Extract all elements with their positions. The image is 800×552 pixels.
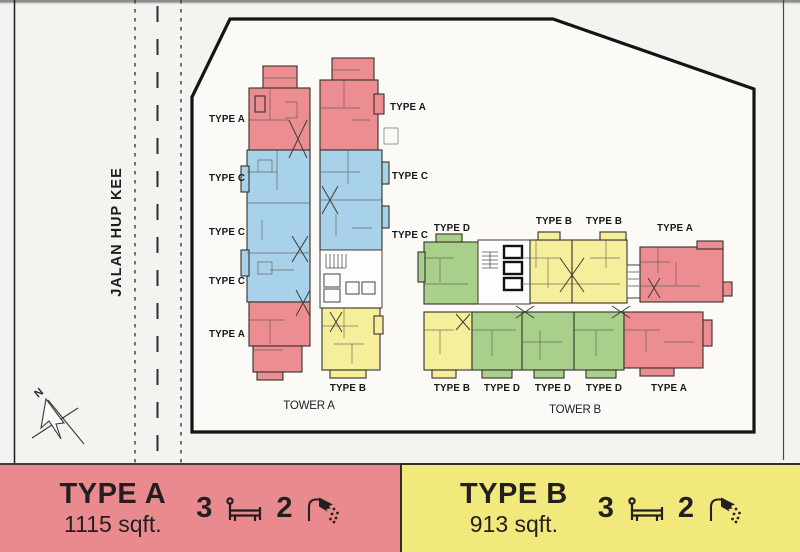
lift-shaft — [504, 278, 522, 290]
legend-type-area: 1115 sqft. — [60, 511, 167, 538]
tower-a-name: TOWER A — [283, 400, 335, 412]
tower-a-type-b-unit — [322, 308, 383, 378]
unit-type-label: TYPE D — [484, 383, 520, 394]
road-name-label: JALAN HUP KEE — [109, 167, 125, 297]
scan-artifact-strip — [0, 0, 800, 3]
tower-a-left-type-a-bottom — [249, 302, 310, 380]
tower-a-core — [320, 250, 382, 308]
tower-b-bottom-type-a — [624, 312, 712, 376]
legend-type-name: TYPE A — [60, 479, 167, 509]
unit-type-label: TYPE C — [209, 173, 245, 184]
tower-b-link-bridge — [627, 265, 640, 298]
tower-b-top-type-a — [640, 241, 732, 302]
bedroom-count: 3 — [598, 492, 614, 525]
legend-type-area: 913 sqft. — [460, 511, 568, 538]
unit-type-label: TYPE A — [209, 329, 245, 340]
unit-type-label: TYPE C — [392, 171, 428, 182]
unit-type-label: TYPE C — [209, 227, 245, 238]
bathroom-count: 2 — [276, 492, 292, 525]
unit-type-label: TYPE B — [536, 216, 572, 227]
legend-specs: 3 2 — [598, 492, 742, 525]
tower-b-lift-shafts — [504, 246, 522, 290]
bed-icon — [626, 494, 666, 524]
unit-type-label: TYPE A — [651, 383, 687, 394]
tower-b-top-type-b-pair — [530, 232, 627, 303]
unit-type-legend: TYPE A 1115 sqft. 3 2 — [0, 463, 800, 552]
legend-type-name: TYPE B — [460, 479, 568, 509]
bed-icon — [224, 494, 264, 524]
unit-type-label: TYPE A — [209, 114, 245, 125]
lift-shaft — [504, 262, 522, 274]
shower-icon — [304, 494, 340, 524]
unit-type-label: TYPE B — [586, 216, 622, 227]
legend-specs: 3 2 — [196, 492, 340, 525]
unit-type-label: TYPE D — [535, 383, 571, 394]
unit-type-label: TYPE D — [586, 383, 622, 394]
scan-artifact-strip-fade — [0, 3, 800, 5]
site-plan: JALAN HUP KEE — [0, 0, 800, 463]
unit-type-label: TYPE C — [392, 230, 428, 241]
tower-a-left-type-c-stack — [241, 150, 310, 302]
tower-b-bottom-type-b — [424, 312, 472, 378]
floor-plan-page: { "page": { "background": "#f5f3ef" }, "… — [0, 0, 800, 552]
shower-icon — [706, 494, 742, 524]
tower-b-bottom-type-d-row — [472, 312, 624, 378]
lift-shaft — [504, 246, 522, 258]
unit-type-label: TYPE B — [330, 383, 366, 394]
unit-type-label: TYPE D — [434, 223, 470, 234]
bedroom-count: 3 — [196, 492, 212, 525]
tower-b-name: TOWER B — [549, 404, 602, 416]
tower-b-top-type-d — [418, 234, 478, 304]
unit-type-label: TYPE A — [657, 223, 693, 234]
legend-card-type-a: TYPE A 1115 sqft. 3 2 — [0, 463, 400, 552]
unit-type-label: TYPE C — [209, 276, 245, 287]
unit-type-label: TYPE A — [390, 102, 426, 113]
legend-card-type-b: TYPE B 913 sqft. 3 2 — [400, 463, 800, 552]
unit-type-label: TYPE B — [434, 383, 470, 394]
bathroom-count: 2 — [678, 492, 694, 525]
